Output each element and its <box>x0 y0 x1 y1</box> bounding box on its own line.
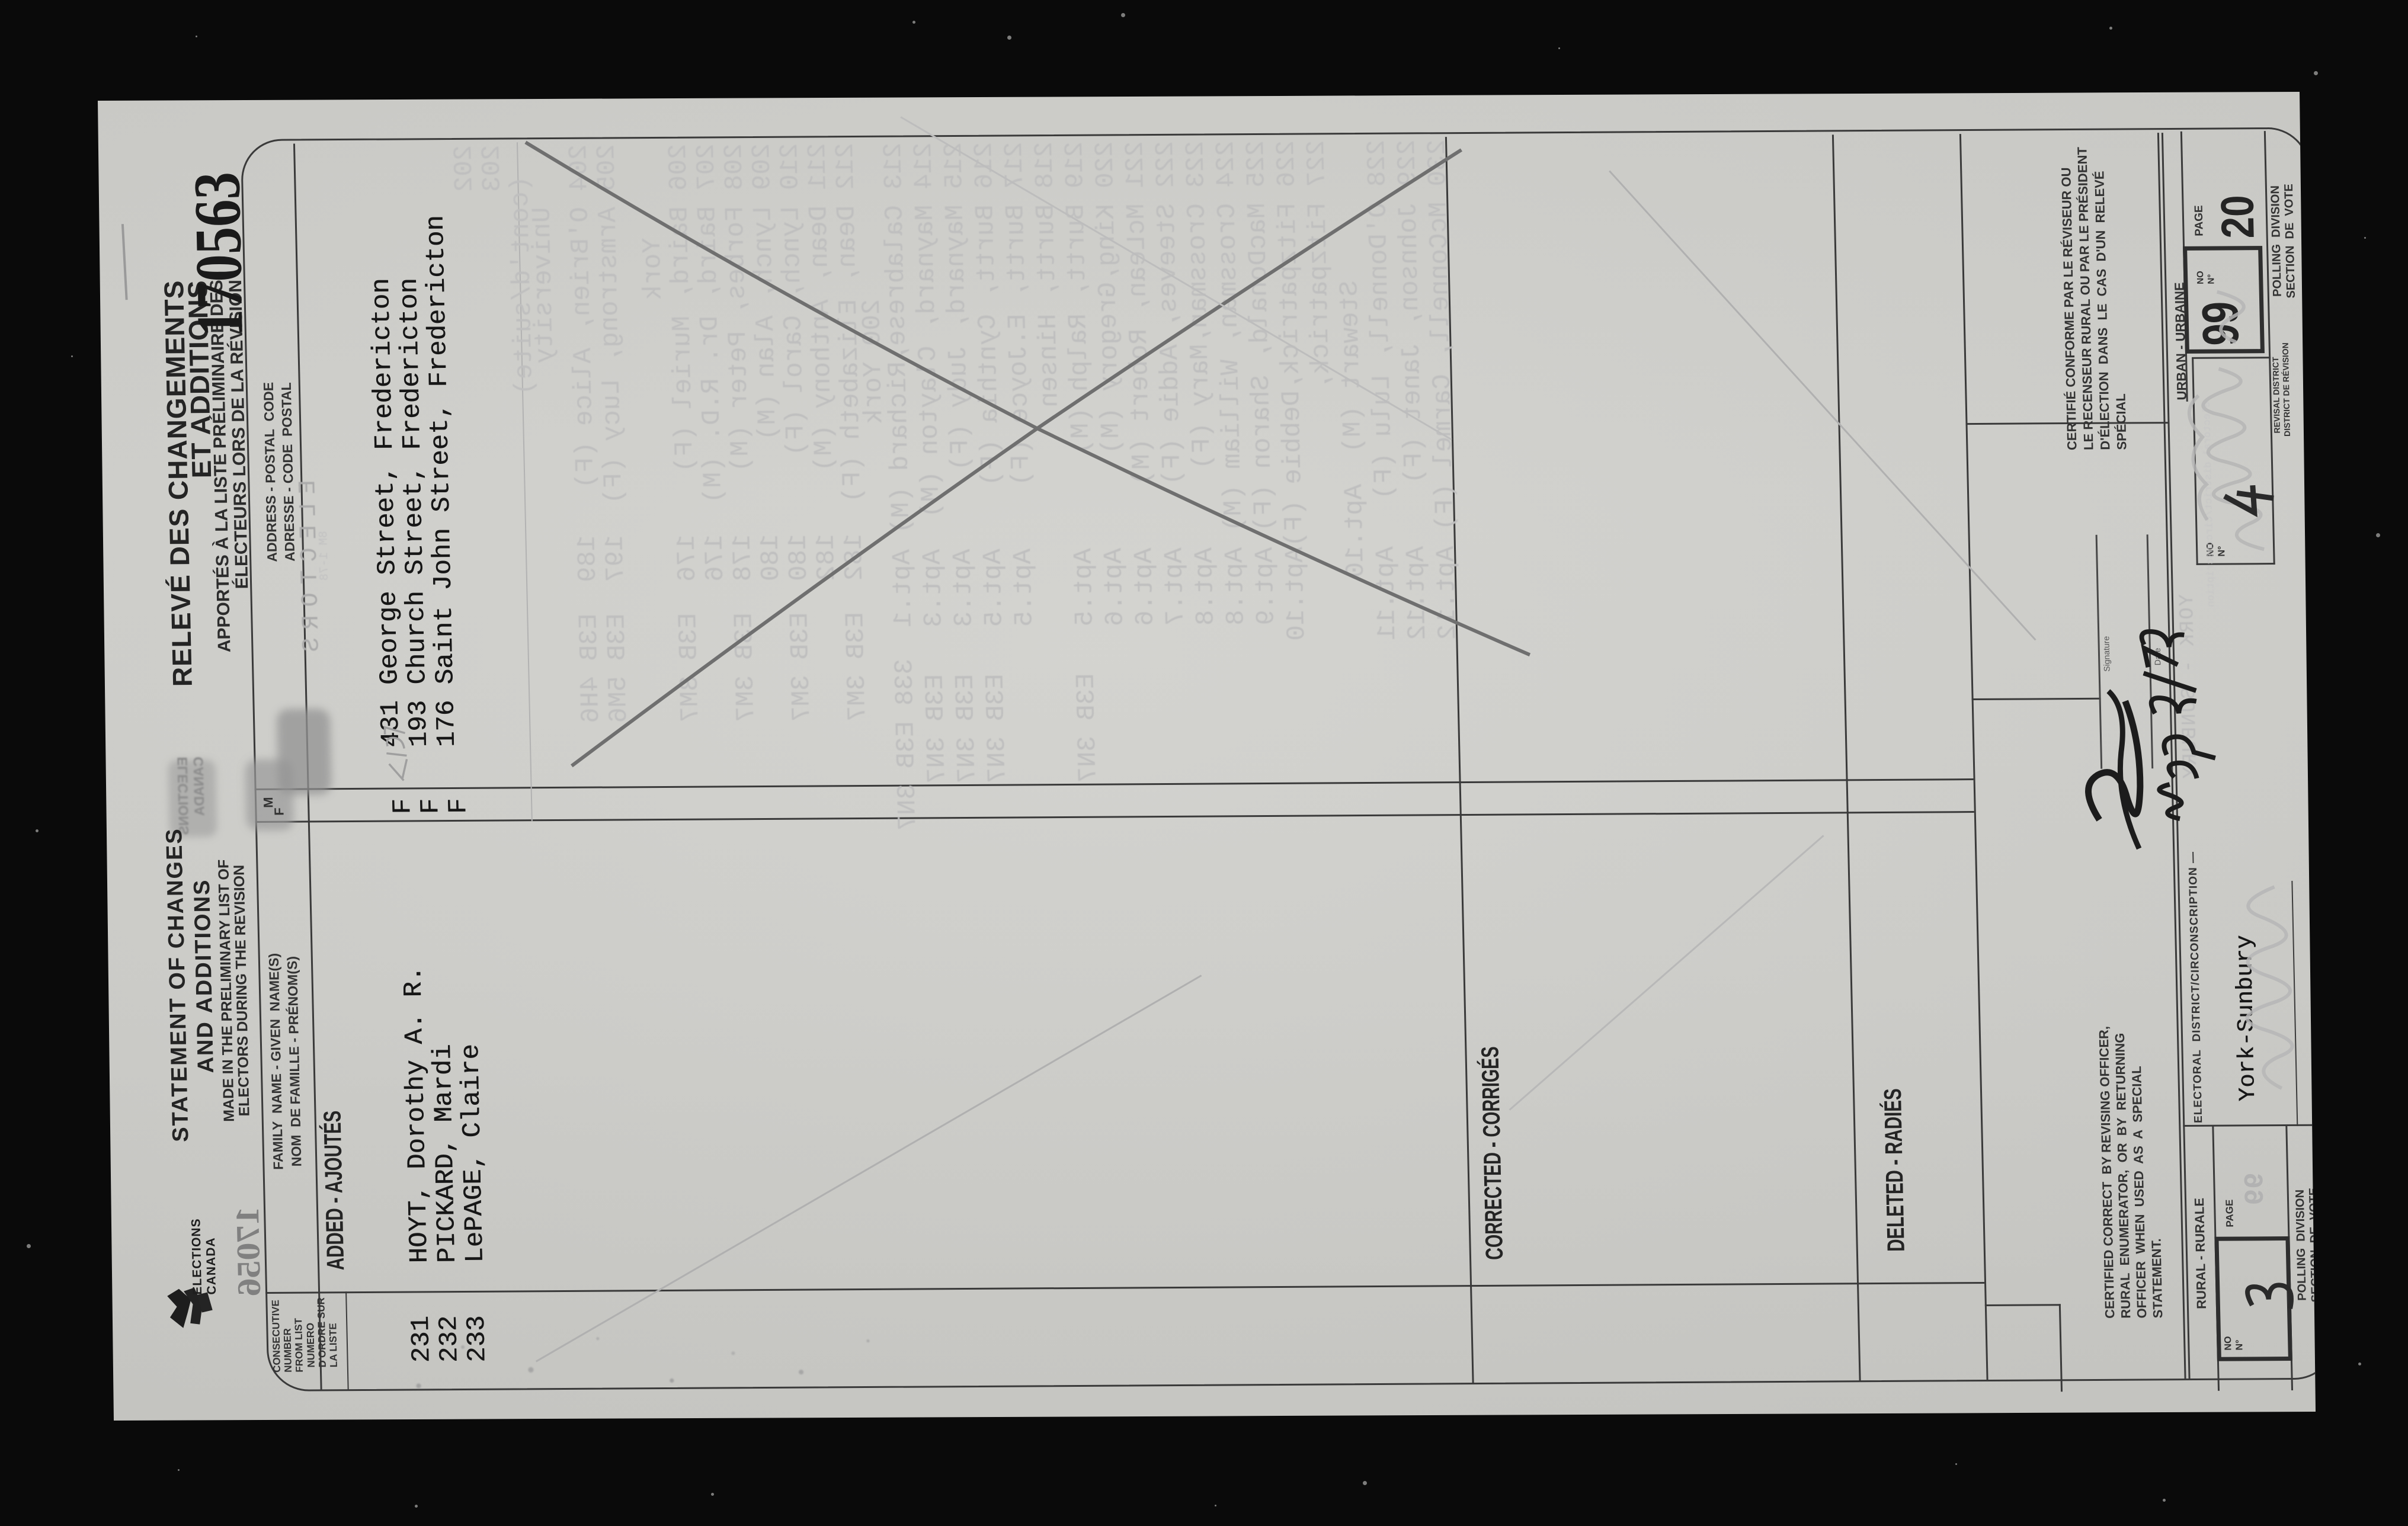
svg-text:170563: 170563 <box>180 172 257 337</box>
svg-text:17056: 17056 <box>229 1207 268 1296</box>
